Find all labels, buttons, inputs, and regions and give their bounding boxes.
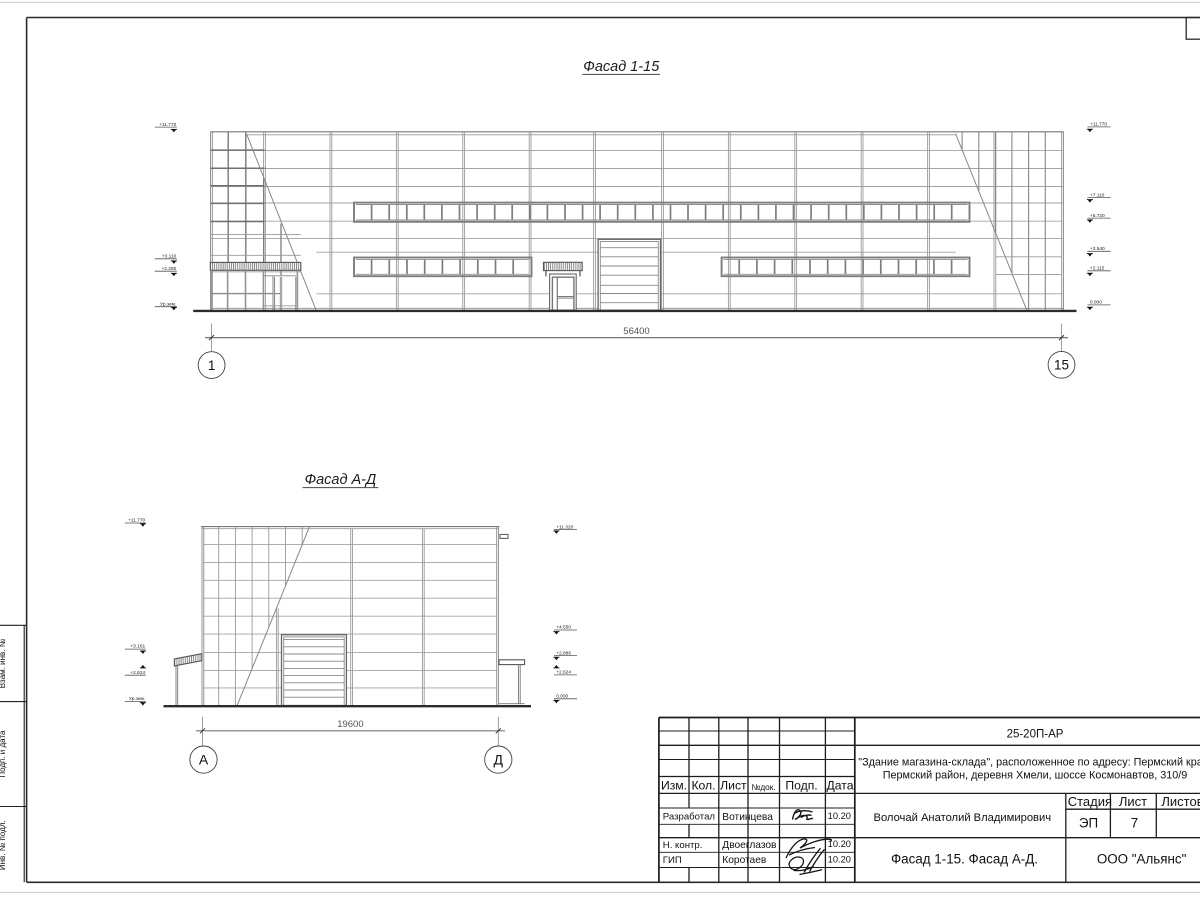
svg-text:ГИП: ГИП: [663, 855, 682, 866]
svg-text:Вотинцева: Вотинцева: [722, 812, 773, 823]
svg-text:Листов: Листов: [1161, 794, 1200, 809]
svg-text:ЭП: ЭП: [1079, 816, 1098, 831]
svg-text:Коротаев: Коротаев: [722, 855, 766, 866]
svg-text:10.20: 10.20: [828, 854, 851, 864]
svg-text:Лист: Лист: [720, 779, 747, 793]
svg-text:Кол.: Кол.: [691, 779, 715, 793]
svg-text:Изм.: Изм.: [661, 779, 687, 793]
svg-text:10.20: 10.20: [828, 811, 851, 821]
svg-text:15: 15: [1054, 358, 1069, 373]
svg-text:Пермский район, деревня Хмели,: Пермский район, деревня Хмели, шоссе Кос…: [883, 769, 1187, 781]
svg-text:Фасад А-Д: Фасад А-Д: [305, 472, 377, 488]
svg-text:"Здание магазина-склада", расп: "Здание магазина-склада", расположенное …: [858, 757, 1200, 769]
svg-text:Двоеглазов: Двоеглазов: [722, 840, 776, 851]
svg-text:1: 1: [208, 358, 216, 373]
svg-text:Фасад 1-15. Фасад А-Д.: Фасад 1-15. Фасад А-Д.: [891, 851, 1038, 866]
svg-text:Волочай Анатолий Владимирович: Волочай Анатолий Владимирович: [873, 812, 1051, 824]
svg-text:Д: Д: [494, 752, 504, 768]
svg-text:Разработал: Разработал: [663, 812, 715, 823]
svg-text:А: А: [199, 752, 209, 768]
svg-text:Взам. инв. №: Взам. инв. №: [0, 638, 7, 688]
svg-text:Дата: Дата: [827, 779, 854, 793]
svg-text:7: 7: [1131, 816, 1138, 831]
svg-text:Подп.: Подп.: [785, 779, 817, 793]
svg-text:Лист: Лист: [1119, 794, 1147, 809]
svg-text:Инв. № подл.: Инв. № подл.: [0, 820, 7, 870]
svg-text:19600: 19600: [337, 719, 363, 730]
svg-text:56400: 56400: [623, 326, 649, 337]
svg-text:Фасад 1-15: Фасад 1-15: [583, 59, 660, 75]
svg-text:25-20П-АР: 25-20П-АР: [1007, 729, 1064, 741]
svg-text:№док.: №док.: [751, 782, 775, 792]
svg-text:ООО "Альянс": ООО "Альянс": [1097, 852, 1187, 867]
svg-text:Подп. и дата: Подп. и дата: [0, 730, 7, 778]
svg-text:Н. контр.: Н. контр.: [663, 840, 703, 851]
svg-text:Стадия: Стадия: [1068, 794, 1112, 809]
